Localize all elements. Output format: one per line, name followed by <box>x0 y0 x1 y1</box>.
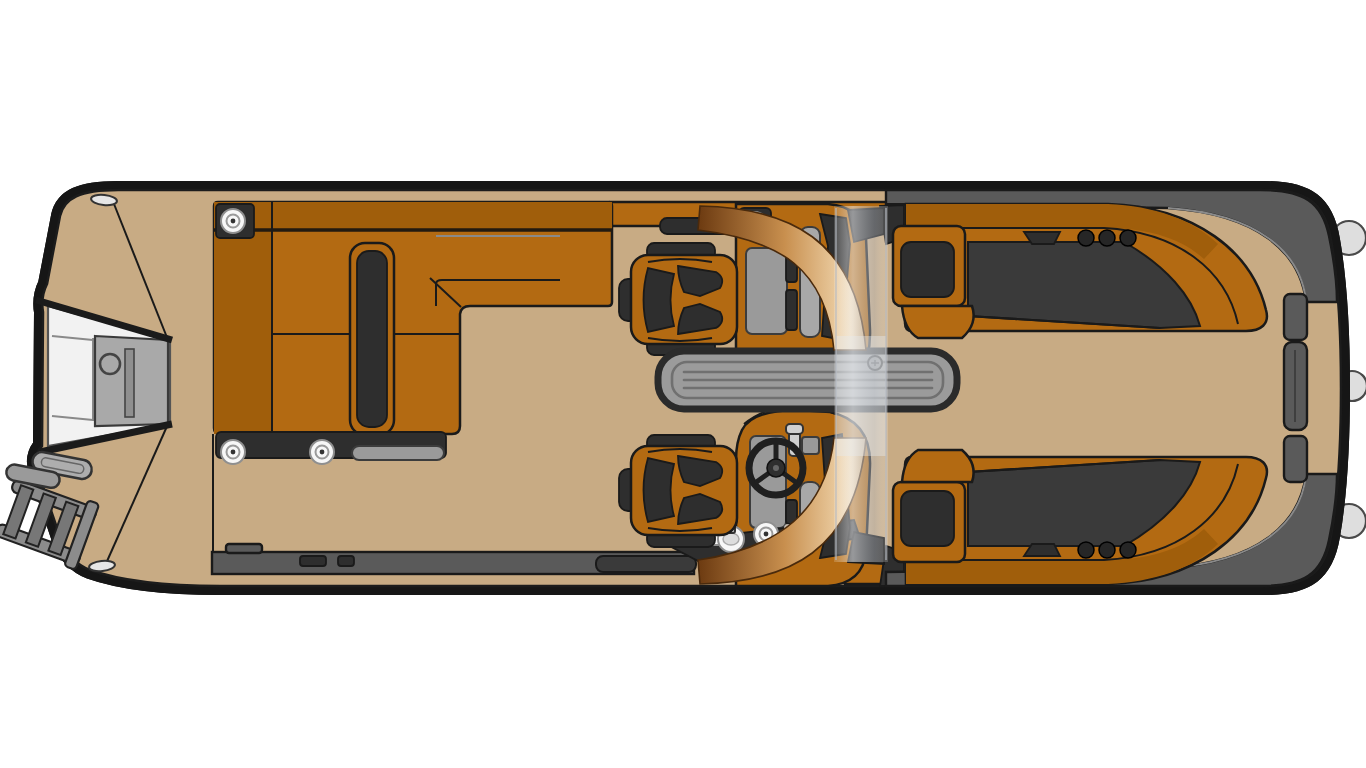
lounge-backrest <box>214 230 272 434</box>
grab-rail <box>352 446 444 460</box>
latch <box>786 290 797 330</box>
kick-panel <box>596 556 696 572</box>
boat-diagram <box>0 0 1366 768</box>
gauge-box <box>802 437 819 454</box>
captain-chair-port <box>619 243 737 355</box>
gate-hinge-bar <box>125 349 134 417</box>
speaker-icon <box>221 209 245 233</box>
gate-hinge <box>300 556 326 566</box>
gate-bracket <box>226 544 262 553</box>
cockpit-table <box>658 351 957 409</box>
armrest-bolster-pad <box>357 251 387 427</box>
lounge-backrest <box>214 202 612 230</box>
speaker-icon <box>310 440 334 464</box>
windshield-glass-center <box>836 336 886 456</box>
captain-chair-starboard <box>619 435 737 547</box>
speaker-icon <box>221 440 245 464</box>
ladder-rung <box>3 485 33 538</box>
console-door <box>746 248 787 334</box>
gate-hinge <box>338 556 354 566</box>
pontoon-floorplan-illustration <box>0 0 1366 768</box>
